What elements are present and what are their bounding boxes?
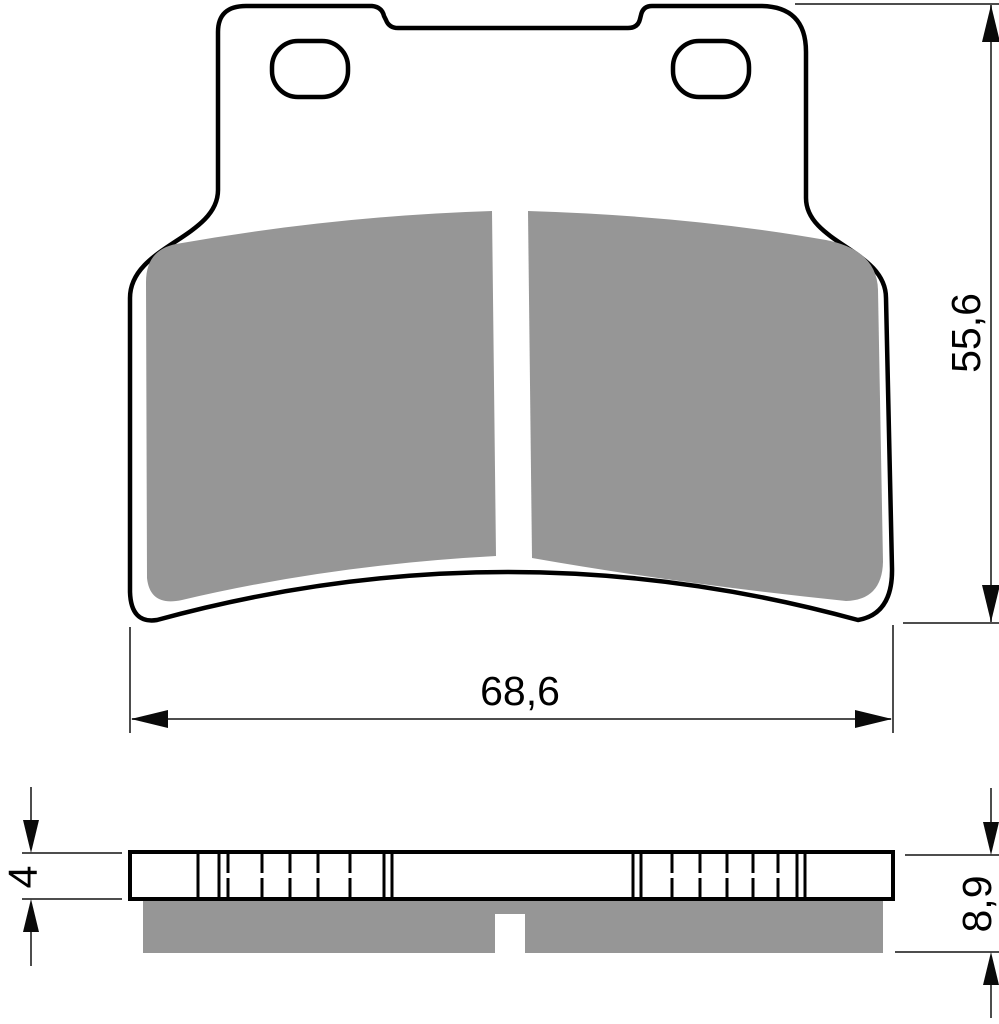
backplate-arrow-up bbox=[23, 899, 39, 932]
height-arrow-up bbox=[982, 5, 999, 42]
mounting-hole-left bbox=[272, 41, 348, 97]
total-arrow-down bbox=[983, 822, 999, 855]
total-thickness-label: 8,9 bbox=[954, 876, 999, 933]
groove-notch bbox=[495, 914, 525, 955]
friction-pad-left bbox=[146, 211, 496, 601]
brake-pad-technical-drawing: 55,6 68,6 4 8,9 bbox=[0, 0, 999, 1024]
height-dimension-label: 55,6 bbox=[943, 293, 989, 373]
backplate-arrow-down bbox=[23, 820, 39, 853]
backplate-thickness-label: 4 bbox=[0, 866, 46, 889]
width-arrow-left bbox=[131, 710, 168, 728]
side-view bbox=[130, 852, 893, 955]
mounting-hole-right bbox=[673, 41, 749, 97]
friction-pad-right bbox=[528, 211, 883, 601]
total-arrow-up bbox=[983, 952, 999, 985]
width-arrow-right bbox=[855, 710, 892, 728]
plan-view bbox=[130, 6, 892, 620]
drawing-canvas: 55,6 68,6 4 8,9 bbox=[0, 0, 999, 1024]
dimension-total-thickness: 8,9 bbox=[895, 788, 999, 1018]
dimension-backplate-thickness: 4 bbox=[0, 787, 122, 966]
width-dimension-label: 68,6 bbox=[480, 668, 560, 714]
height-arrow-down bbox=[982, 585, 999, 622]
dimension-width: 68,6 bbox=[130, 625, 893, 733]
